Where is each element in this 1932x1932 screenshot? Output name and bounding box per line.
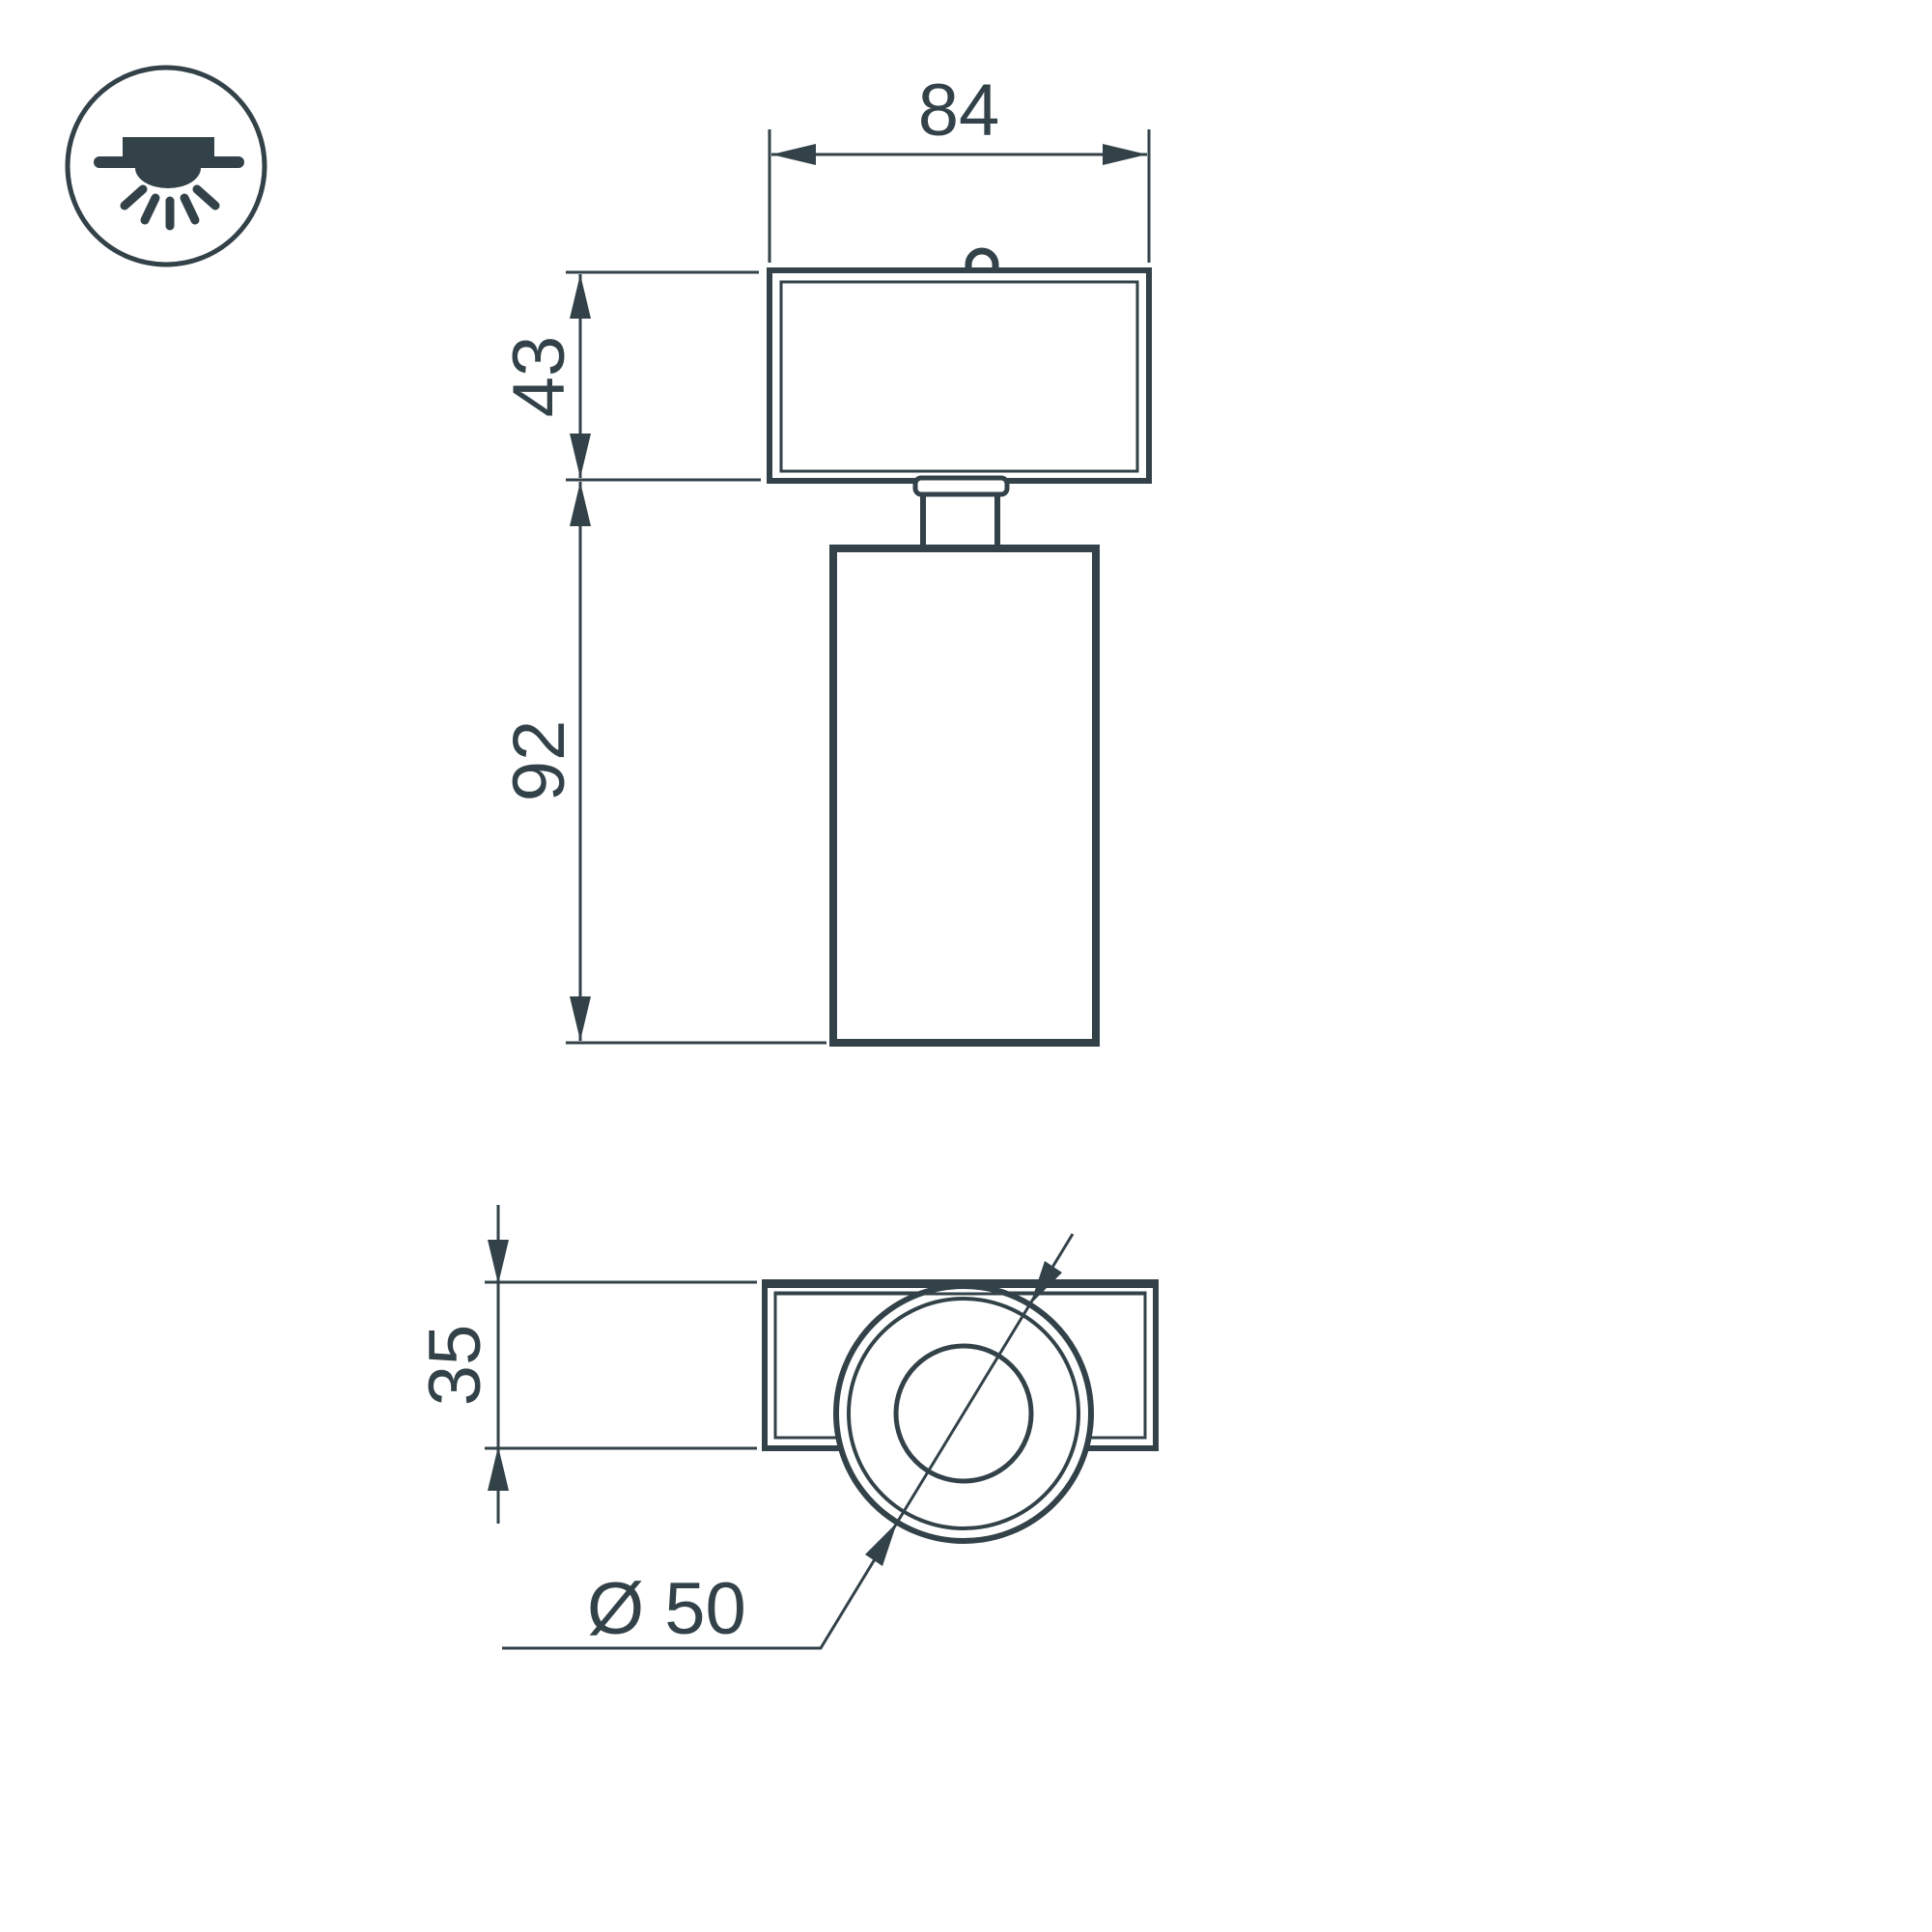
dimension-label-adapter-height: 43: [498, 336, 580, 418]
arrowhead-up: [570, 482, 591, 526]
arrowhead-up: [488, 1446, 509, 1491]
dimension-label-width: 84: [918, 70, 1000, 152]
dimension-label-body-height: 92: [498, 720, 580, 802]
drawing-canvas: 84 43 92: [0, 0, 1932, 1932]
arrowhead-down: [570, 434, 591, 478]
dimension-body-height-92: 92: [498, 482, 826, 1043]
icon-ceiling-line: [94, 156, 244, 168]
swivel-flange: [915, 478, 1007, 494]
dimension-label-diameter: Ø 50: [587, 1568, 746, 1650]
arrowhead-down: [570, 996, 591, 1041]
arrowhead-down: [488, 1240, 509, 1284]
icon-light-rays: [125, 189, 215, 226]
spot-cylinder-body: [833, 548, 1096, 1043]
front-view: [770, 251, 1149, 1043]
icon-light-dome: [135, 168, 201, 188]
dimension-label-base-depth: 35: [414, 1325, 496, 1407]
dimension-adapter-height-43: 43: [498, 272, 761, 480]
surface-ceiling-downlight-icon: [68, 68, 265, 265]
track-adapter-outline: [770, 270, 1149, 481]
dimension-width-84: 84: [770, 70, 1149, 263]
dimension-base-depth-35: 35: [414, 1205, 757, 1524]
bottom-view: [765, 1282, 1156, 1541]
arrowhead-right: [1103, 144, 1147, 165]
arrowhead-left: [771, 144, 816, 165]
arrowhead-lower: [865, 1523, 897, 1566]
arrowhead-up: [570, 274, 591, 319]
luminaire-dimension-drawing: 84 43 92: [0, 0, 1932, 1932]
